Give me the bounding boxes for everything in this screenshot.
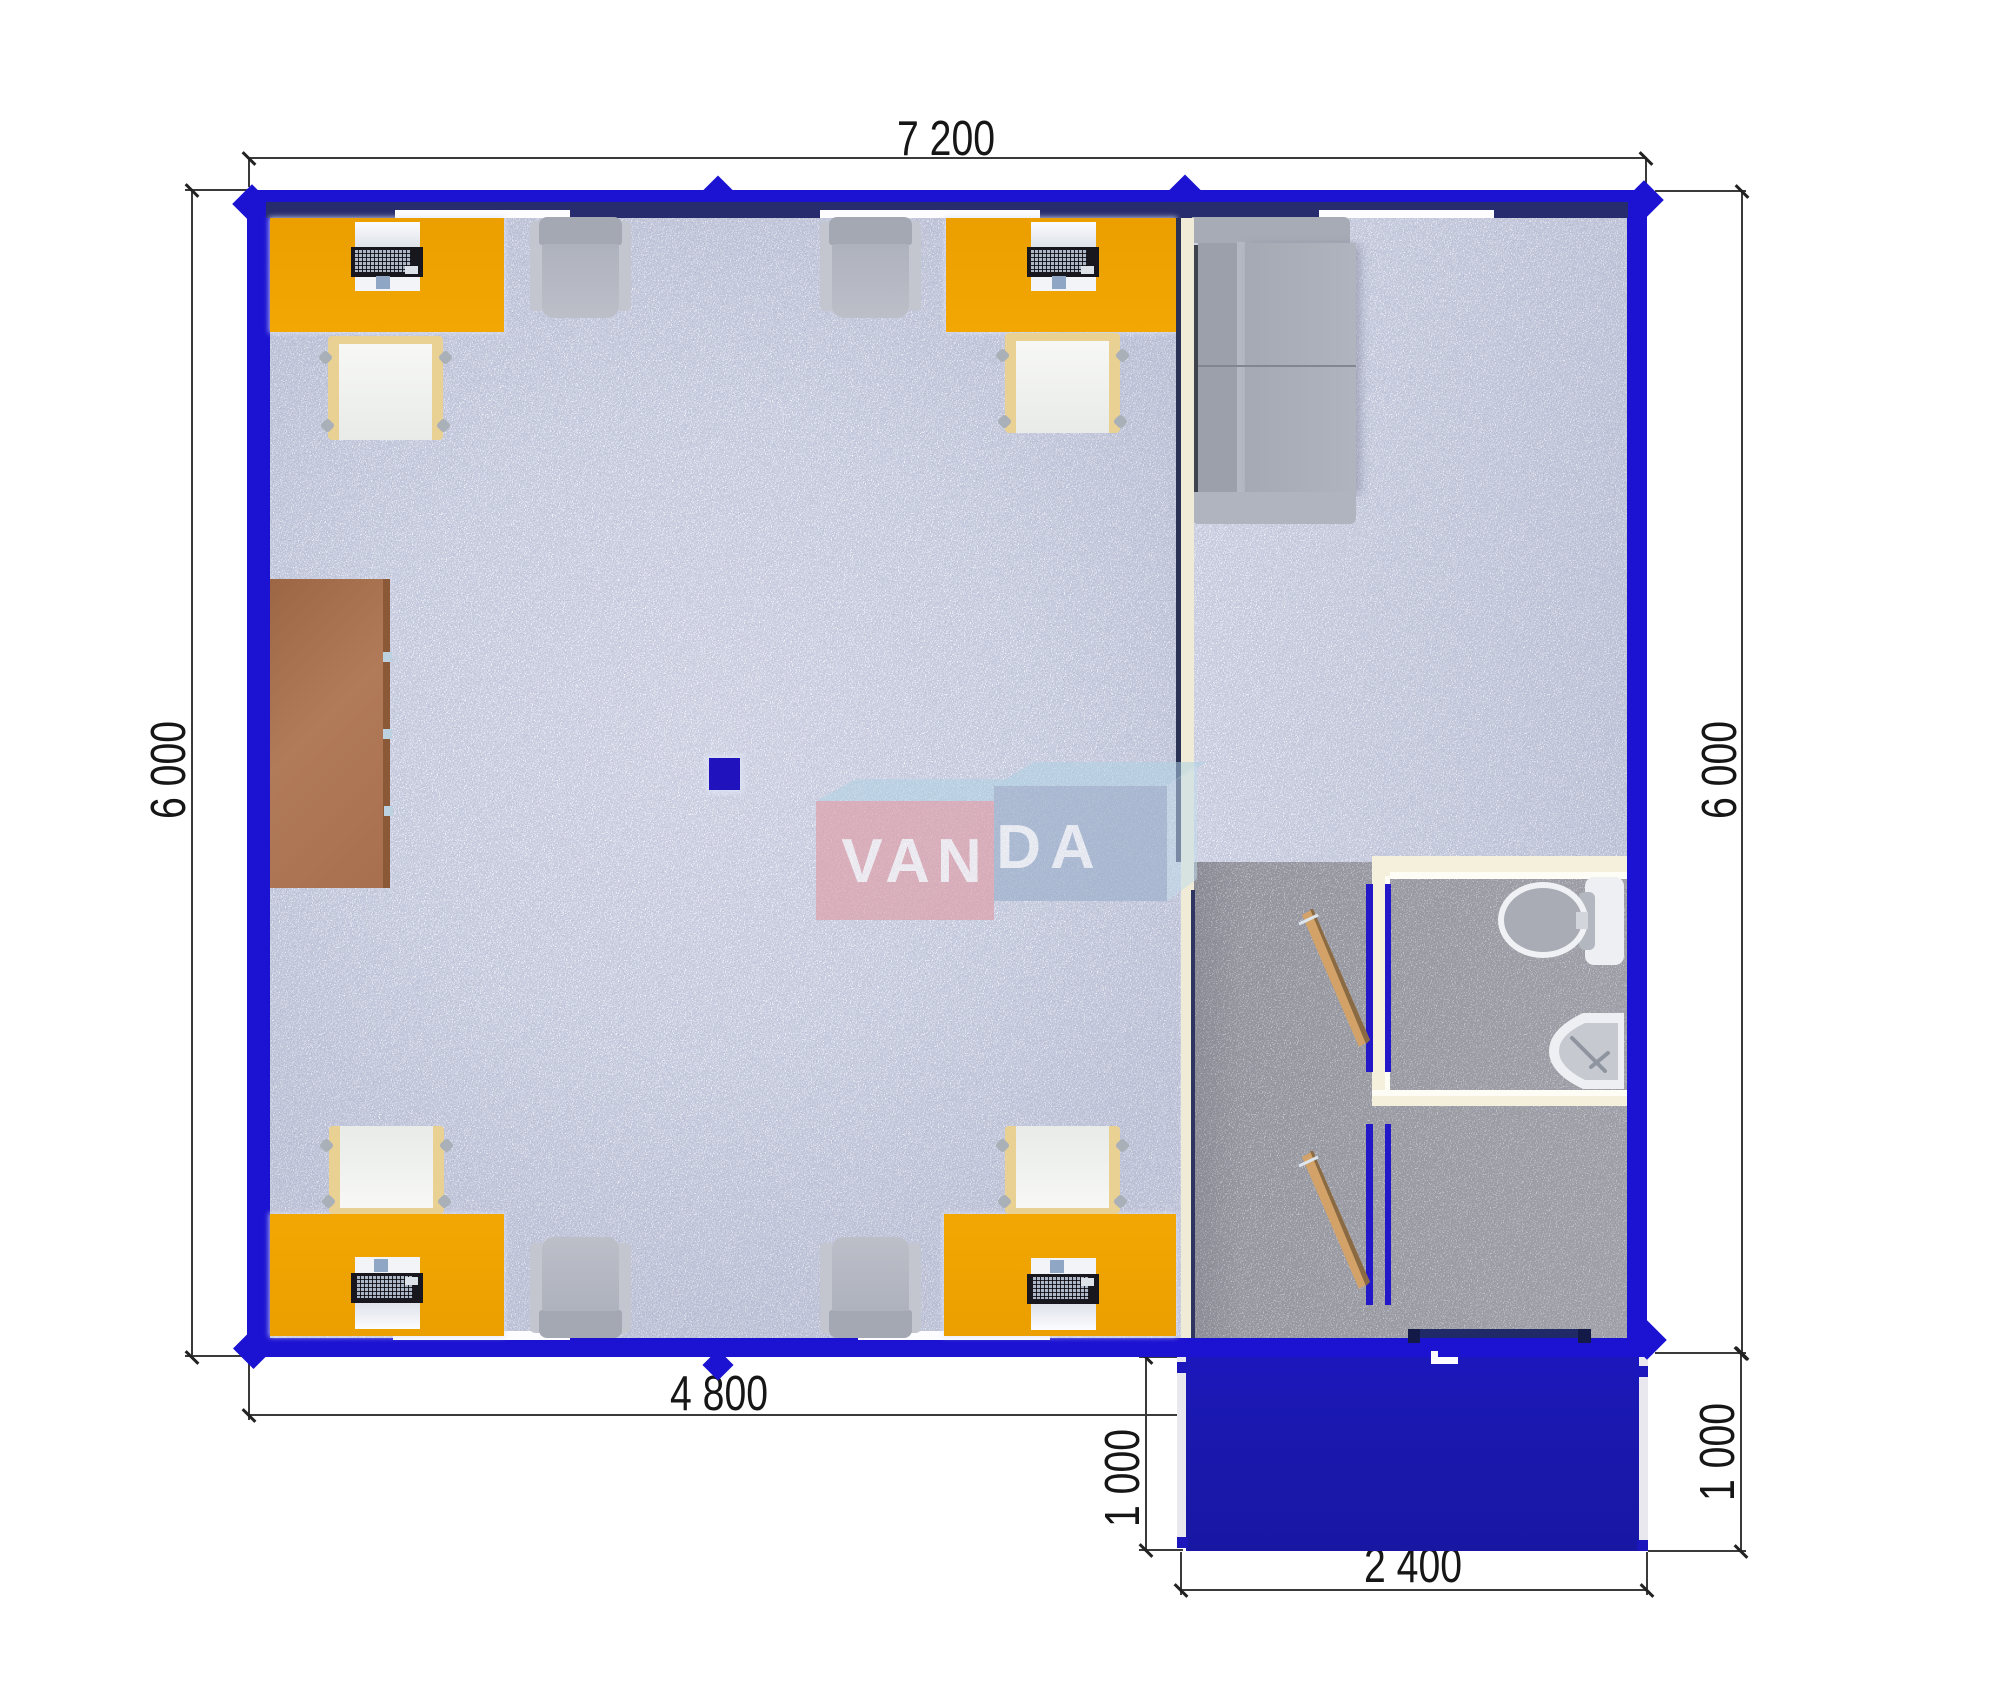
svg-text:DA: DA	[996, 813, 1104, 882]
svg-text:VAN: VAN	[841, 827, 988, 896]
